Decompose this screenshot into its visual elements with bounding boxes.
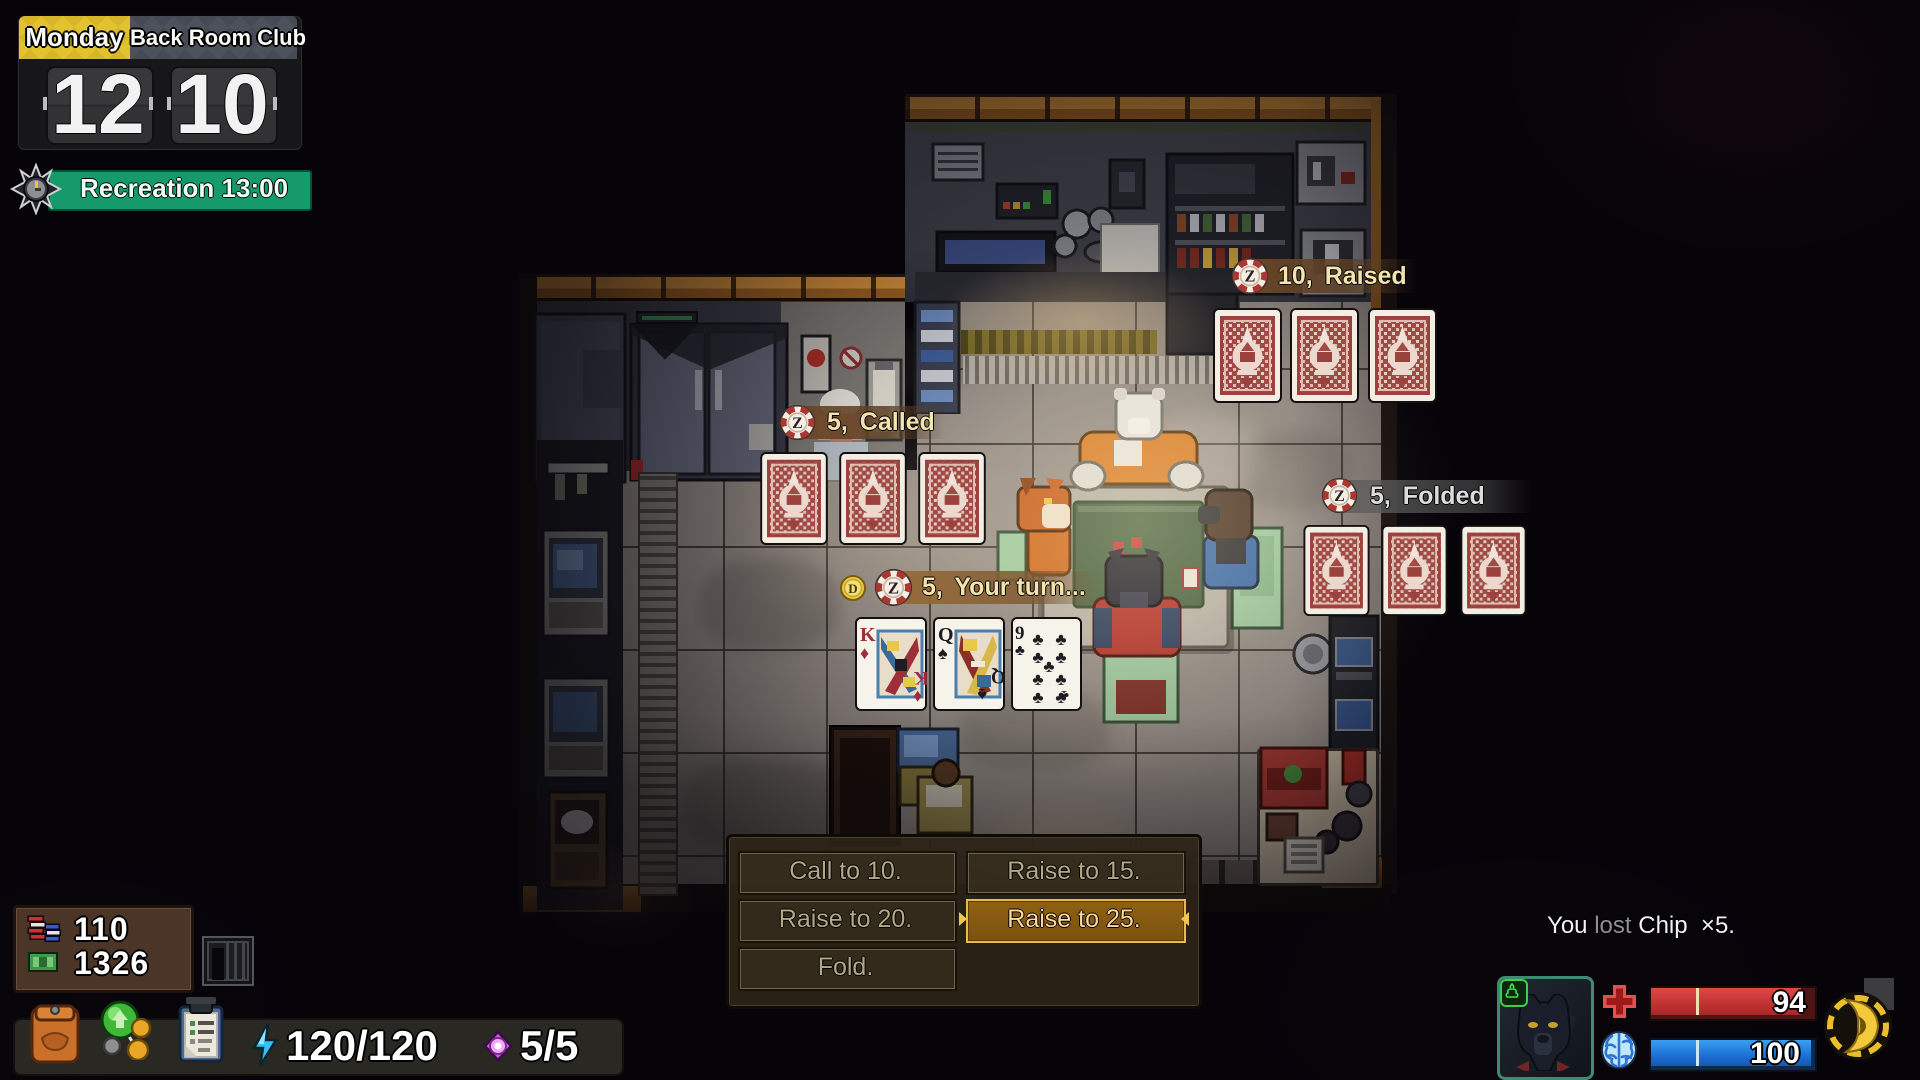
svg-text:9: 9 (1015, 623, 1025, 644)
svg-text:Q: Q (991, 666, 1005, 687)
svg-text:♠: ♠ (977, 685, 987, 705)
svg-text:♣: ♣ (1055, 630, 1066, 649)
svg-text:♦: ♦ (913, 687, 922, 707)
svg-text:♣: ♣ (1032, 630, 1043, 649)
svg-text:♣: ♣ (1055, 670, 1066, 689)
svg-text:♣: ♣ (1055, 648, 1066, 667)
svg-text:♣: ♣ (1059, 687, 1069, 704)
svg-text:♣: ♣ (1032, 648, 1043, 667)
svg-text:♣: ♣ (1043, 657, 1054, 676)
svg-text:♠: ♠ (938, 643, 948, 663)
svg-text:♣: ♣ (1032, 670, 1043, 689)
svg-text:♣: ♣ (1032, 688, 1043, 707)
svg-text:K: K (914, 667, 927, 688)
svg-text:♦: ♦ (860, 643, 869, 663)
svg-text:♣: ♣ (1015, 642, 1025, 659)
